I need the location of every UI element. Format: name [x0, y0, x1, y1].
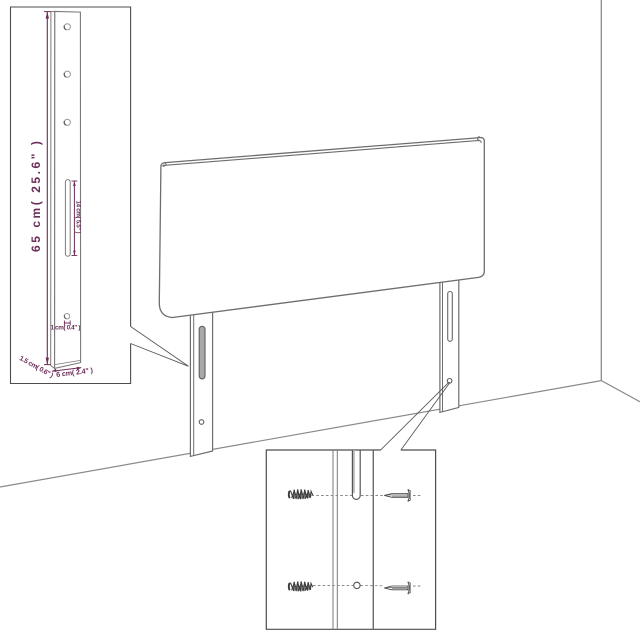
svg-text:1 cm( 0.4" ): 1 cm( 0.4" ) — [51, 325, 81, 332]
svg-text:65 cm( 25.6" ): 65 cm( 25.6" ) — [29, 139, 43, 252]
svg-text:14 cm( 5.5" ): 14 cm( 5.5" ) — [75, 201, 82, 234]
